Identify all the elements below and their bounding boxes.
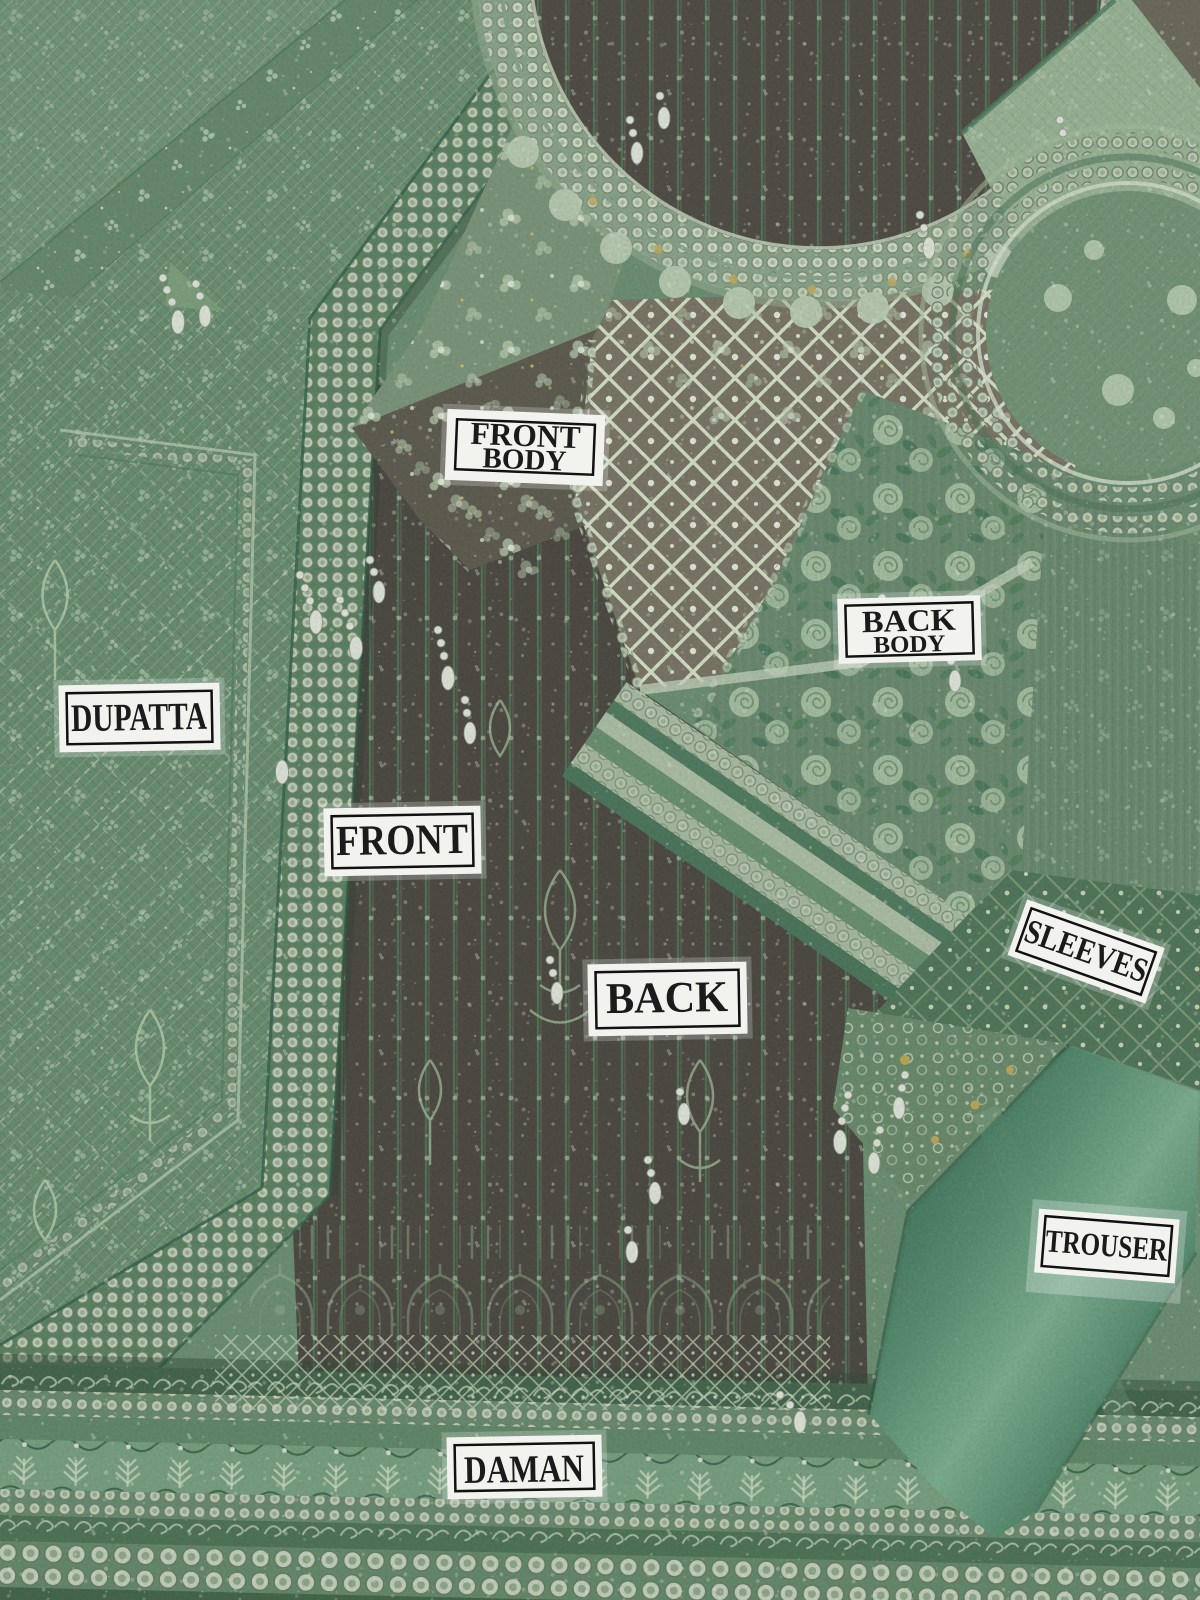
svg-text:BODY: BODY (873, 631, 946, 659)
svg-text:DAMAN: DAMAN (464, 1447, 585, 1492)
svg-text:BODY: BODY (482, 442, 567, 477)
svg-text:BACK: BACK (606, 972, 729, 1023)
svg-text:DUPATTA: DUPATTA (71, 695, 208, 740)
svg-text:FRONT: FRONT (336, 816, 469, 865)
